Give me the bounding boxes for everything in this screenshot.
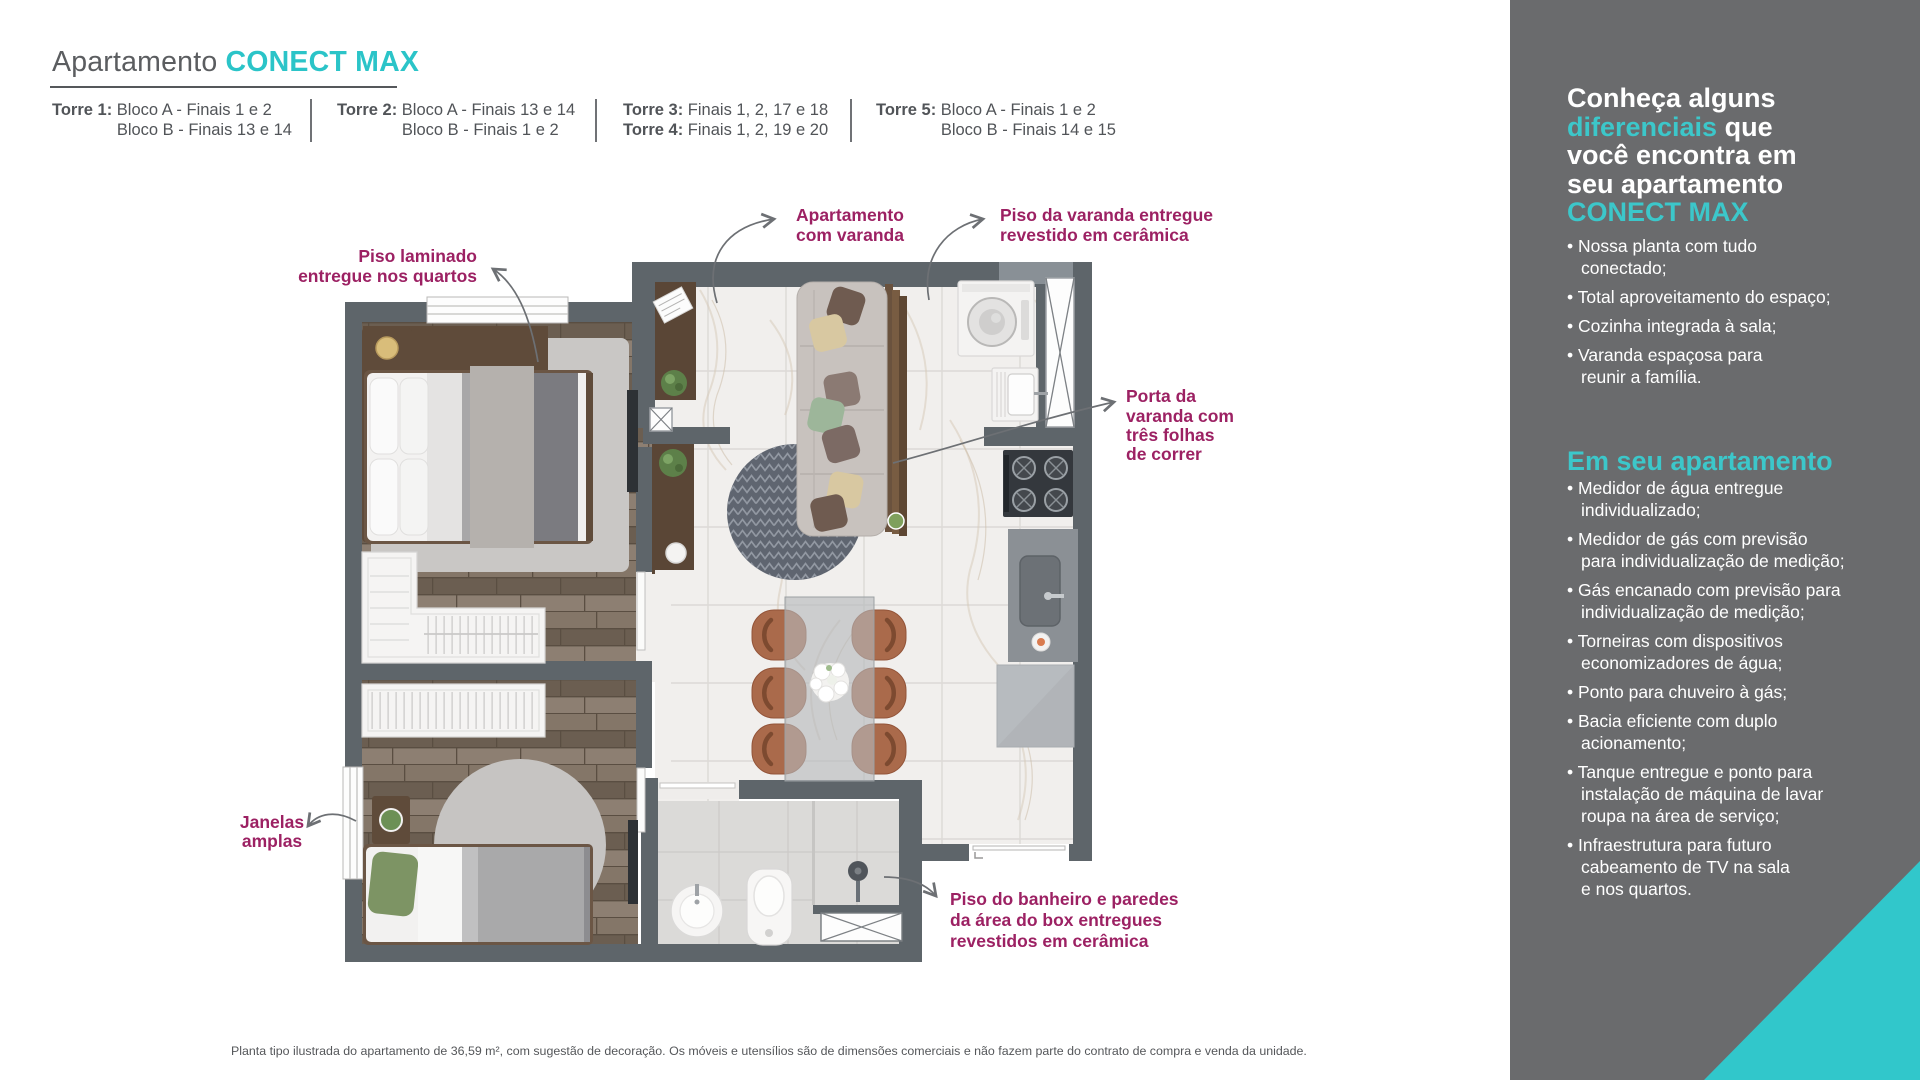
svg-text:Porta da: Porta da [1126,386,1196,406]
svg-text:Piso do banheiro e paredes: Piso do banheiro e paredes [950,889,1179,909]
svg-text:varanda com: varanda com [1126,406,1234,426]
svg-text:de correr: de correr [1126,444,1202,464]
svg-text:Apartamento: Apartamento [796,205,904,225]
svg-text:Piso laminado: Piso laminado [358,246,477,266]
svg-text:Janelas: Janelas [240,812,304,832]
svg-text:da área do box entregues: da área do box entregues [950,910,1162,930]
svg-text:revestido em cerâmica: revestido em cerâmica [1000,225,1189,245]
svg-text:três folhas: três folhas [1126,425,1215,445]
svg-text:revestidos em cerâmica: revestidos em cerâmica [950,931,1149,951]
svg-text:Piso da varanda entregue: Piso da varanda entregue [1000,205,1213,225]
svg-text:entregue nos quartos: entregue nos quartos [298,266,477,286]
svg-text:amplas: amplas [242,831,303,851]
svg-text:com varanda: com varanda [796,225,904,245]
